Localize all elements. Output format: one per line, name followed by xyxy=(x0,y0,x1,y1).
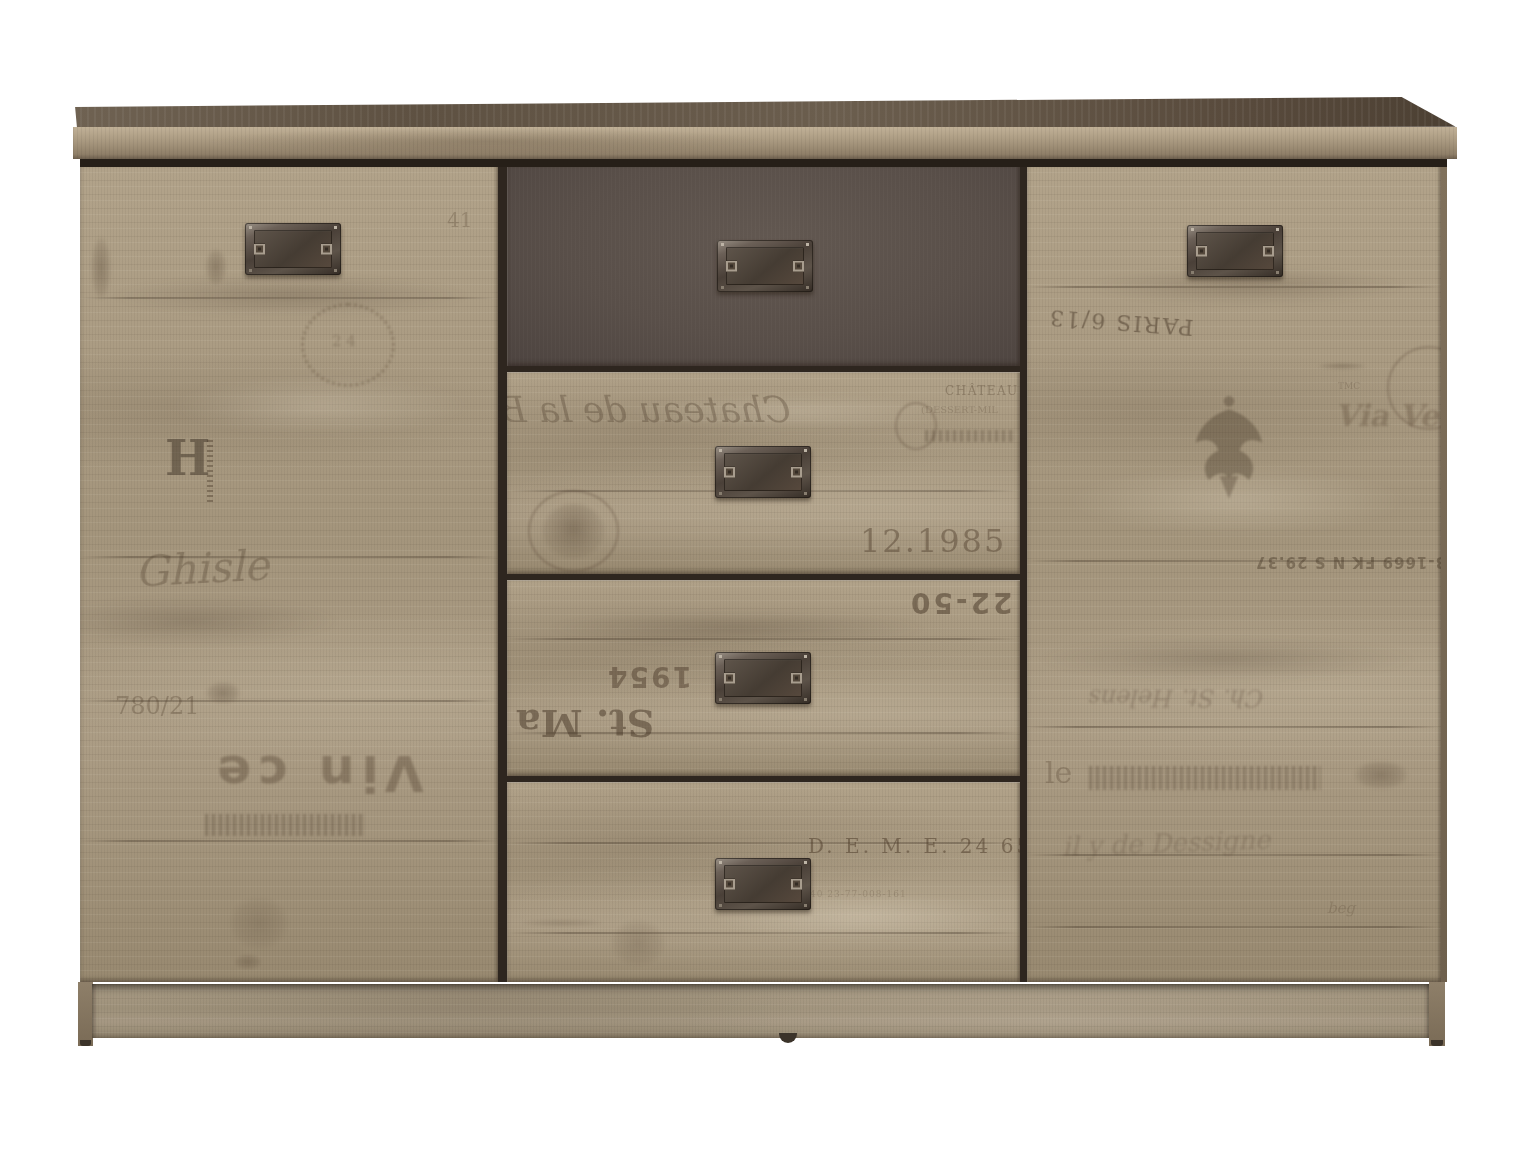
stamp-date: 12.1985 xyxy=(860,525,1006,557)
stamp-year: 1954 xyxy=(606,662,692,690)
stamp-lot: 22-50 xyxy=(908,588,1013,616)
handle-screw xyxy=(724,673,735,684)
tiny-vertical-text xyxy=(207,440,213,504)
print-band xyxy=(925,430,1015,442)
ink-block xyxy=(1345,756,1417,794)
top-board-front-edge xyxy=(73,127,1457,159)
plank-joint xyxy=(1027,726,1441,728)
wreath-stamp: 2 4 xyxy=(301,303,395,387)
drawer-1-handle xyxy=(717,240,813,292)
product-photo-sideboard: 41 2 4 H Ghisle 780/21 Vin ce xyxy=(0,0,1535,1151)
stamp-serial: 3-1669 FK N S 29.37 xyxy=(1255,554,1441,569)
grain-streak xyxy=(110,274,470,318)
stamp-saint: St. Ma xyxy=(516,704,654,742)
ink-smudge xyxy=(202,243,230,291)
plank-joint xyxy=(80,297,498,299)
plank-joint xyxy=(507,932,1020,934)
grain-streak xyxy=(1037,636,1417,682)
top-board xyxy=(73,97,1457,159)
plank-joint xyxy=(80,840,498,842)
handwriting-chateau: Chateau de la B xyxy=(507,392,794,428)
handle-screw xyxy=(724,879,735,890)
postal-stamp-core xyxy=(543,504,604,559)
handle-screw xyxy=(1196,246,1207,257)
stamp-code: D. E. M. E. 24 65 xyxy=(808,836,1020,856)
plinth xyxy=(92,984,1429,1038)
drawer-3: 22-50 1954 St. Ma xyxy=(507,580,1020,776)
ink-smudge xyxy=(200,678,246,708)
stamp-paris: PARIS 6/13 xyxy=(1047,306,1194,338)
partial-oval-stamp xyxy=(895,402,937,450)
stamp-beg: beg xyxy=(1327,901,1355,916)
grain-streak xyxy=(547,610,927,646)
handle-screw xyxy=(724,467,735,478)
grain-streak xyxy=(80,596,340,646)
handle-screw xyxy=(791,467,802,478)
left-foot xyxy=(78,982,93,1046)
right-foot-glide xyxy=(1431,1040,1443,1046)
carcass-body: 41 2 4 H Ghisle 780/21 Vin ce xyxy=(80,166,1447,982)
stamp-via: Via Ve xyxy=(1335,401,1439,431)
handle-screw xyxy=(254,244,265,255)
top-shadow xyxy=(80,158,1447,167)
ink-underline xyxy=(1310,362,1374,370)
drawer-4: D. E. M. E. 24 65 40 23-77-008-161 xyxy=(507,782,1020,982)
stamp-chateau: CHÂTEAU xyxy=(945,385,1019,397)
center-glide xyxy=(779,1033,797,1043)
ink-squiggle xyxy=(230,952,266,972)
left-door: 41 2 4 H Ghisle 780/21 Vin ce xyxy=(80,166,498,982)
plank-joint xyxy=(1027,286,1441,288)
handle-screw xyxy=(791,879,802,890)
stamp-small-code: 40 23-77-008-161 xyxy=(810,890,907,899)
left-foot-glide xyxy=(80,1040,91,1046)
right-side-edge xyxy=(1441,166,1447,982)
stencil-vin-ce: Vin ce xyxy=(210,748,424,798)
wreath-stamp-center: 2 4 xyxy=(332,334,356,349)
stamp-tmc: TMC xyxy=(1338,382,1360,391)
handwriting-upper: Ch. St. Helens xyxy=(1090,686,1265,710)
right-door: PARIS 6/13 TMC Via Ve 3-1669 FK N S 29.3… xyxy=(1027,166,1441,982)
drawer-3-handle xyxy=(715,652,811,704)
postal-stamp xyxy=(528,490,619,572)
stamp-41: 41 xyxy=(447,210,472,230)
handle-screw xyxy=(1263,246,1274,257)
stencil-band xyxy=(205,814,365,836)
plank-joint xyxy=(507,638,1020,640)
drawer-1-graphite xyxy=(507,166,1020,366)
drawer-4-handle xyxy=(715,858,811,910)
faded-round-stamp xyxy=(220,888,298,958)
stamp-le: le xyxy=(1045,758,1072,788)
right-door-handle xyxy=(1187,225,1283,277)
handwriting-lower: il y de Dessigne xyxy=(1062,826,1271,859)
handle-screw xyxy=(321,244,332,255)
stamp-780-21: 780/21 xyxy=(115,694,199,718)
monogram-stamp: H xyxy=(165,434,210,482)
print-band xyxy=(1089,766,1321,790)
eagle-crest-stamp xyxy=(1189,392,1269,504)
handle-screw xyxy=(791,673,802,684)
ink-streak xyxy=(507,918,617,928)
ink-smudge xyxy=(88,226,114,310)
drawer-2: Chateau de la B CHÂTEAU (DESSERT-MIL 12.… xyxy=(507,372,1020,574)
drawer-2-handle xyxy=(715,446,811,498)
grain-highlight xyxy=(170,376,470,436)
left-door-handle xyxy=(245,223,341,275)
handwriting-ghisle: Ghisle xyxy=(134,545,270,594)
plank-joint xyxy=(1027,926,1441,928)
handle-screw xyxy=(793,261,804,272)
right-foot xyxy=(1429,982,1445,1046)
handle-screw xyxy=(726,261,737,272)
